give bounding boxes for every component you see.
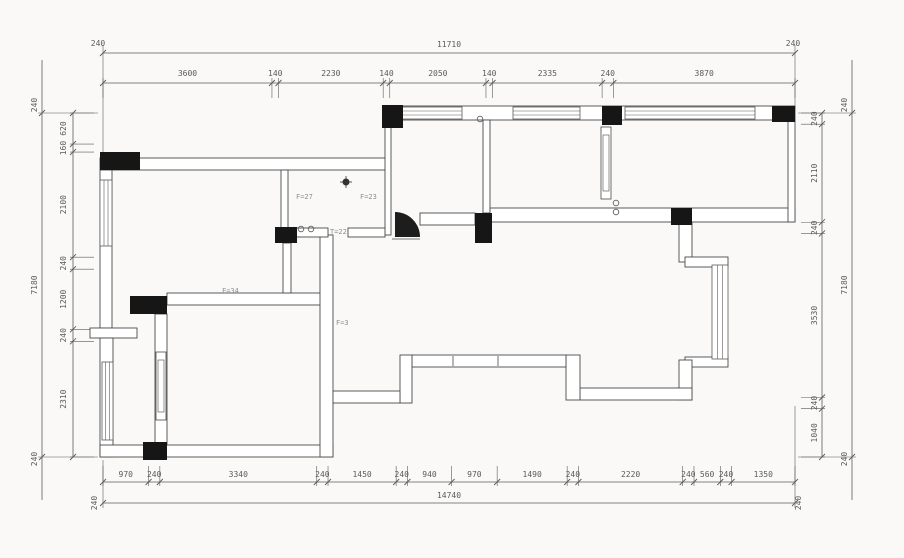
dim-label: 240 bbox=[395, 470, 410, 479]
window-symbol bbox=[402, 107, 462, 119]
dim-label: 2220 bbox=[621, 470, 640, 479]
dim-label: 3530 bbox=[810, 306, 819, 325]
floor-plan-svg: 3600140223014020501402335240387011710240… bbox=[0, 0, 904, 558]
wall bbox=[333, 391, 400, 403]
wall bbox=[412, 355, 566, 367]
room-area-label: F=27 bbox=[296, 193, 313, 201]
dim-label: 240 bbox=[601, 69, 616, 78]
dim-label: 240 bbox=[810, 396, 819, 411]
structural-column bbox=[382, 105, 403, 128]
dim-total-label: 7180 bbox=[30, 275, 39, 294]
dim-label: 560 bbox=[700, 470, 715, 479]
window-symbol bbox=[513, 107, 580, 119]
dim-label: 970 bbox=[119, 470, 134, 479]
dim-label: 2050 bbox=[428, 69, 447, 78]
dim-label: 240 bbox=[786, 39, 801, 48]
dim-label: 140 bbox=[379, 69, 394, 78]
wall bbox=[348, 228, 385, 237]
dim-label: 1350 bbox=[754, 470, 773, 479]
dim-label: 240 bbox=[566, 470, 581, 479]
dim-label: 2100 bbox=[59, 195, 68, 214]
dim-label: 140 bbox=[482, 69, 497, 78]
dim-label: 240 bbox=[59, 328, 68, 343]
window-symbol bbox=[712, 265, 728, 359]
dim-label: 240 bbox=[147, 470, 162, 479]
dim-label: 240 bbox=[30, 98, 39, 113]
dim-label: 240 bbox=[315, 470, 330, 479]
structural-column bbox=[130, 296, 167, 314]
dim-label: 240 bbox=[30, 452, 39, 467]
cabinet-symbol bbox=[601, 127, 611, 199]
window-symbol bbox=[102, 362, 113, 440]
wall bbox=[566, 355, 580, 400]
dim-label: 1040 bbox=[810, 423, 819, 442]
dim-label: 140 bbox=[268, 69, 283, 78]
dim-label: 3600 bbox=[178, 69, 197, 78]
structural-column bbox=[143, 442, 167, 460]
dim-label: 160 bbox=[59, 141, 68, 156]
room-area-label: F=34 bbox=[222, 287, 239, 295]
floorplan-sheet: 3600140223014020501402335240387011710240… bbox=[0, 0, 904, 558]
cabinet-symbol bbox=[156, 352, 166, 420]
structural-column bbox=[671, 208, 692, 225]
wall bbox=[167, 293, 323, 305]
dim-total-label: 11710 bbox=[437, 40, 461, 49]
wall bbox=[281, 170, 288, 235]
dim-label: 940 bbox=[422, 470, 437, 479]
dim-label: 1490 bbox=[523, 470, 542, 479]
wall bbox=[420, 213, 475, 225]
wall bbox=[385, 127, 391, 235]
wall bbox=[320, 235, 333, 457]
structural-column bbox=[602, 106, 622, 125]
wall bbox=[580, 388, 692, 400]
wall bbox=[90, 328, 137, 338]
window-symbol bbox=[100, 180, 112, 246]
wall bbox=[788, 120, 795, 222]
wall bbox=[100, 158, 390, 170]
wall bbox=[100, 445, 333, 457]
hinge-circle-icon bbox=[613, 200, 619, 206]
dim-label: 240 bbox=[719, 470, 734, 479]
dim-label: 240 bbox=[810, 111, 819, 126]
dim-label: 2230 bbox=[321, 69, 340, 78]
dim-label: 2310 bbox=[59, 389, 68, 408]
dim-label: 620 bbox=[59, 121, 68, 136]
dim-label: 240 bbox=[90, 496, 99, 511]
structural-column bbox=[772, 106, 795, 122]
room-area-label: T=22 bbox=[330, 228, 347, 236]
structural-column bbox=[475, 213, 492, 243]
dim-label: 1200 bbox=[59, 289, 68, 308]
dim-label: 2335 bbox=[538, 69, 557, 78]
dim-label: 3340 bbox=[229, 470, 248, 479]
room-area-label: F=23 bbox=[360, 193, 377, 201]
dim-total-label: 7180 bbox=[840, 275, 849, 294]
dim-label: 240 bbox=[840, 98, 849, 113]
dim-label: 240 bbox=[681, 470, 696, 479]
wall bbox=[483, 120, 490, 213]
door-leaf bbox=[395, 212, 420, 237]
wall bbox=[490, 208, 795, 222]
wall bbox=[283, 243, 291, 293]
room-area-label: F=3 bbox=[336, 319, 349, 327]
window-symbol bbox=[625, 107, 755, 119]
dim-label: 1450 bbox=[352, 470, 371, 479]
structural-column bbox=[100, 152, 140, 170]
dim-label: 2110 bbox=[810, 163, 819, 182]
dim-label: 240 bbox=[840, 452, 849, 467]
wall bbox=[679, 222, 692, 262]
dim-label: 240 bbox=[59, 256, 68, 271]
structural-column bbox=[275, 227, 297, 243]
dim-label: 3870 bbox=[695, 69, 714, 78]
dim-total-label: 14740 bbox=[437, 491, 461, 500]
dim-label: 970 bbox=[467, 470, 482, 479]
dim-label: 240 bbox=[810, 220, 819, 235]
dim-label: 240 bbox=[794, 496, 803, 511]
wall bbox=[400, 355, 412, 403]
